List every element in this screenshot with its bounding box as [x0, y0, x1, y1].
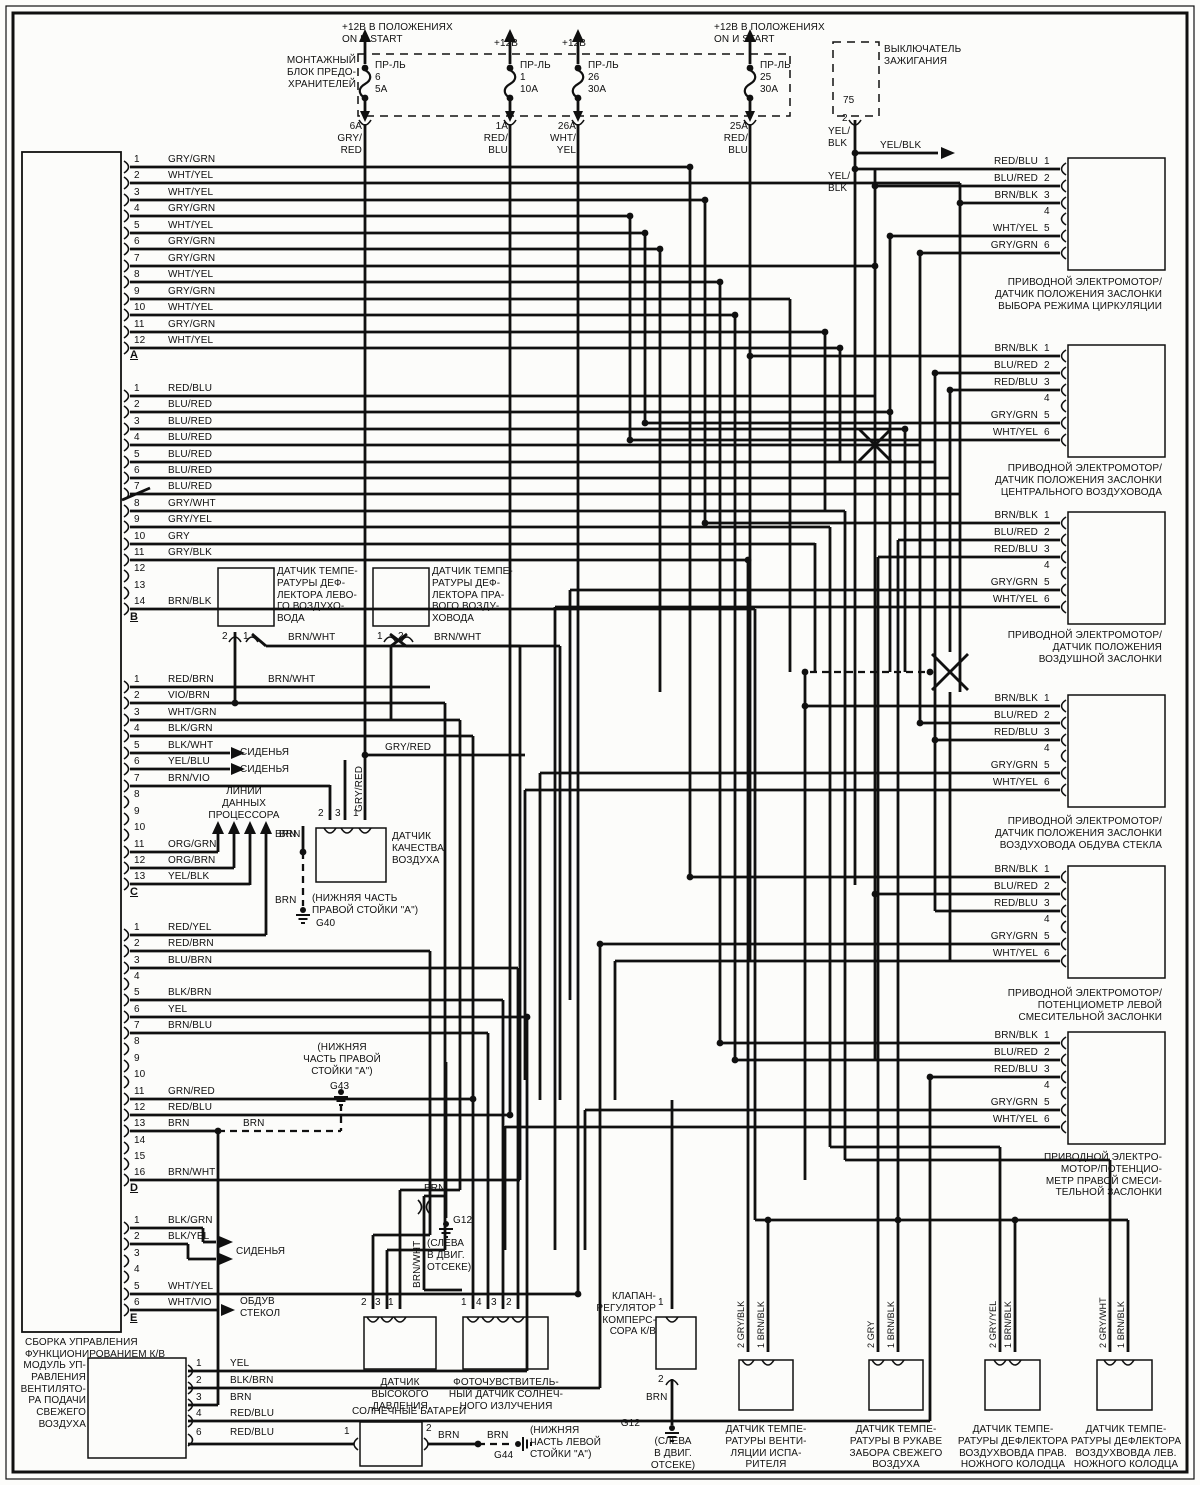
connector-label-6: ПРИВОДНОЙ ЭЛЕКТРО- МОТОР/ПОТЕНЦИО- МЕТР …	[900, 1152, 1162, 1199]
pin-number: 4	[1044, 393, 1050, 405]
pin-number: 1	[134, 674, 140, 686]
pin-number: 3	[1044, 1064, 1050, 1076]
junction-dot	[232, 700, 239, 707]
fuse-icon	[360, 70, 371, 98]
pin-number: 12	[134, 855, 145, 867]
pin-number: 1	[461, 1297, 467, 1309]
pin-wire-label: GRY/GRN	[168, 319, 215, 331]
pin-number: 5	[1044, 760, 1050, 772]
arrow-right-icon	[219, 1253, 233, 1265]
wire-label-brnwht-rot: BRN/WHT	[412, 1241, 424, 1288]
pin-wire-label: BLU/RED	[950, 173, 1038, 185]
pin-number: 1	[353, 808, 359, 820]
pin-icon	[124, 161, 129, 173]
pin-icon	[124, 1076, 129, 1088]
fuse-output-label: 25А RED/ BLU	[708, 121, 748, 156]
pin-wire-label: GRY/GRN	[950, 931, 1038, 943]
pin-number: 9	[134, 1053, 140, 1065]
ground-icon	[296, 907, 310, 923]
pin-wire-label: RED/YEL	[168, 922, 212, 934]
pin-icon	[1062, 1037, 1067, 1049]
pin-icon	[1062, 1121, 1067, 1133]
pin-wire-label: BLU/RED	[168, 481, 212, 493]
pin-number: 3	[134, 1248, 140, 1260]
pin-number: 1	[344, 1426, 350, 1438]
group-letter-b: B	[130, 611, 138, 624]
pin-number: 10	[134, 302, 145, 314]
pin-wire-label: BLK/BRN	[230, 1375, 274, 1387]
junction-dot	[627, 213, 634, 220]
left-footwell-temp-sensor-box	[1097, 1360, 1152, 1410]
junction-dot	[745, 557, 752, 564]
fuse-output-label: 6А GRY/ RED	[322, 121, 362, 156]
photo-sensor-box	[463, 1317, 548, 1369]
pin-icon	[124, 260, 129, 272]
arrow-up-icon	[228, 821, 240, 834]
pin-number: 12	[134, 335, 145, 347]
pin-icon	[124, 1271, 129, 1283]
pin-number: 2	[426, 1423, 432, 1435]
pin-wire-label: WHT/YEL	[168, 187, 213, 199]
pin-wire-label: WHT/YEL	[168, 170, 213, 182]
junction-dot	[702, 197, 709, 204]
pin-number: 13	[134, 580, 145, 592]
pin-icon	[124, 962, 129, 974]
fuse-feed-label: +12В	[494, 38, 518, 50]
pin-icon	[124, 326, 129, 338]
pin-number: 2	[1044, 360, 1050, 372]
arrow-up-icon	[212, 821, 224, 834]
left-deflector-sensor-box	[218, 568, 274, 626]
wire-label-evap-1: 1 BRN/BLK	[756, 1301, 767, 1348]
junction-dot	[902, 426, 909, 433]
pin-number: 6	[1044, 777, 1050, 789]
junction-dot	[872, 891, 879, 898]
group-letter-c: C	[130, 886, 138, 899]
pin-wire-label: WHT/GRN	[168, 707, 216, 719]
pin-wire-label: WHT/YEL	[950, 594, 1038, 606]
pin-wire-label: BLK/BRN	[168, 987, 212, 999]
right-footwell-temp-sensor-box	[985, 1360, 1040, 1410]
pin-number: 1	[388, 1297, 394, 1309]
pin-wire-label: BRN/BLK	[950, 693, 1038, 705]
pin-icon	[124, 780, 129, 792]
ignition-pin: 2	[842, 113, 848, 125]
pin-icon	[124, 1060, 129, 1072]
pin-icon	[1062, 384, 1067, 396]
pin-number: 3	[134, 955, 140, 967]
pin-number: 11	[134, 1086, 145, 1098]
pin-icon	[124, 423, 129, 435]
wire-label-fresh-1: 1 BRN/BLK	[886, 1301, 897, 1348]
pin-number: 7	[134, 773, 140, 785]
pin-icon	[124, 829, 129, 841]
ground-g43-id: G43	[330, 1081, 349, 1093]
pin-wire-label: BRN/BLK	[950, 510, 1038, 522]
pin-number: 8	[134, 789, 140, 801]
pin-number: 1	[377, 631, 383, 643]
solar-batteries-box	[360, 1422, 422, 1466]
pin-number: 3	[1044, 727, 1050, 739]
pin-icon	[124, 276, 129, 288]
ground-g44-note: (НИЖНЯЯ ЧАСТЬ ЛЕВОЙ СТОЙКИ "А")	[530, 1425, 601, 1460]
pin-icon	[1062, 197, 1067, 209]
pin-number: 3	[335, 808, 341, 820]
fuse-icon	[505, 70, 516, 98]
pin-number: 7	[134, 481, 140, 493]
connector-box	[1068, 1032, 1165, 1144]
pin-icon	[1062, 417, 1067, 429]
pin-icon	[1062, 434, 1067, 446]
connector-label-5: ПРИВОДНОЙ ЭЛЕКТРОМОТОР/ ПОТЕНЦИОМЕТР ЛЕВ…	[900, 988, 1162, 1023]
pin-wire-label: BLU/RED	[168, 449, 212, 461]
pin-number: 6	[1044, 594, 1050, 606]
defrost-label: ОБДУВ СТЕКОЛ	[240, 1296, 280, 1320]
pin-number: 2	[1044, 527, 1050, 539]
pin-icon	[1062, 213, 1067, 225]
pin-wire-label: RED/BLU	[168, 383, 212, 395]
junction-dot	[717, 1040, 724, 1047]
junction-dot	[895, 1217, 902, 1224]
junction-dot	[362, 752, 369, 759]
junction-dot	[642, 230, 649, 237]
pin-number: 1	[1044, 1030, 1050, 1042]
left-deflector-sensor-label: ДАТЧИК ТЕМПЕ- РАТУРЫ ДЕФ- ЛЕКТОРА ЛЕВО- …	[277, 566, 358, 625]
junction-dot	[887, 233, 894, 240]
pin-wire-label: WHT/VIO	[168, 1297, 211, 1309]
pin-number: 3	[134, 707, 140, 719]
pin-wire-label: BRN/BLK	[950, 190, 1038, 202]
pin-number: 1	[243, 631, 249, 643]
pin-number: 12	[134, 563, 145, 575]
ignition-switch-box	[833, 42, 879, 116]
pin-wire-label: BLU/RED	[168, 432, 212, 444]
pin-number: 5	[134, 987, 140, 999]
pin-wire-label: RED/BLU	[168, 1102, 212, 1114]
pin-number: 3	[491, 1297, 497, 1309]
fuse-box-label: МОНТАЖНЫЙ БЛОК ПРЕДО- ХРАНИТЕЛЕЙ	[274, 55, 356, 90]
pin-icon	[124, 439, 129, 451]
pin-number: 5	[1044, 223, 1050, 235]
pin-number: 1	[1044, 864, 1050, 876]
pin-number: 14	[134, 596, 145, 608]
main-module-label: СБОРКА УПРАВЛЕНИЯ ФУНКЦИОНИРОВАНИЕМ К/В	[25, 1337, 165, 1361]
pin-number: 14	[134, 1135, 145, 1147]
connector-label-3: ПРИВОДНОЙ ЭЛЕКТРОМОТОР/ ДАТЧИК ПОЛОЖЕНИЯ…	[900, 630, 1162, 665]
arrow-up-icon	[260, 821, 272, 834]
pin-number: 11	[134, 319, 145, 331]
pin-wire-label: BLU/RED	[950, 1047, 1038, 1059]
pin-icon	[124, 406, 129, 418]
junction-dot	[642, 420, 649, 427]
junction-dot	[657, 246, 664, 253]
pin-icon	[124, 1011, 129, 1023]
ground-g40-id: G40	[316, 918, 335, 930]
junction-dot	[802, 703, 809, 710]
pin-icon	[124, 878, 129, 890]
pin-wire-label: GRY/GRN	[950, 240, 1038, 252]
pin-wire-label: RED/BLU	[230, 1427, 274, 1439]
pin-number: 1	[134, 1215, 140, 1227]
pin-icon	[1062, 717, 1067, 729]
evap-temp-sensor-label: ДАТЧИК ТЕМПЕ- РАТУРЫ ВЕНТИ- ЛЯЦИИ ИСПА- …	[718, 1424, 814, 1471]
ignition-terminal: 75	[843, 95, 854, 107]
pin-icon	[1062, 784, 1067, 796]
pin-number: 2	[134, 1231, 140, 1243]
pin-icon	[124, 714, 129, 726]
wire-label-brn-air2: BRN	[275, 895, 296, 907]
pin-icon	[124, 1304, 129, 1316]
pin-wire-label: YEL/BLU	[168, 756, 210, 768]
left-footwell-temp-sensor-label: ДАТЧИК ТЕМПЕ- РАТУРЫ ДЕФЛЕКТОРА ВОЗДУХВО…	[1068, 1424, 1184, 1471]
fuse-output-label: 26А WHT/ YEL	[536, 121, 576, 156]
pin-number: 10	[134, 822, 145, 834]
pin-number: 4	[1044, 743, 1050, 755]
pin-wire-label: WHT/YEL	[950, 427, 1038, 439]
ground-icon	[515, 1437, 531, 1451]
pin-number: 1	[196, 1358, 202, 1370]
pin-icon	[1062, 567, 1067, 579]
pin-icon	[124, 681, 129, 693]
pin-icon	[124, 1109, 129, 1121]
wire-label-yelblk-2: YEL/ BLK	[828, 171, 850, 195]
main-module-box	[22, 152, 121, 1332]
pin-wire-label: BRN/BLK	[950, 1030, 1038, 1042]
pin-number: 7	[134, 253, 140, 265]
fuse-rating-label: ПР-ЛЬ 25 30А	[760, 60, 791, 95]
pin-icon	[1062, 905, 1067, 917]
pin-number: 11	[134, 547, 145, 559]
pin-icon	[124, 763, 129, 775]
pin-wire-label: GRY	[168, 531, 190, 543]
fuse-icon	[745, 70, 756, 98]
pin-wire-label: RED/BRN	[168, 674, 214, 686]
pin-icon	[1062, 601, 1067, 613]
ground-g12b-id: G12	[615, 1418, 640, 1430]
pin-icon	[1062, 767, 1067, 779]
evap-temp-sensor-box	[739, 1360, 793, 1410]
pin-icon	[124, 177, 129, 189]
pin-wire-label: GRY/GRN	[168, 236, 215, 248]
pin-wire-label: ORG/BRN	[168, 855, 215, 867]
pin-wire-label: BLU/RED	[168, 465, 212, 477]
connector-box	[1068, 345, 1165, 457]
pin-number: 1	[1044, 510, 1050, 522]
ground-g44-id: G44	[494, 1450, 513, 1462]
compressor-valve-box	[656, 1317, 696, 1369]
fuse-box	[358, 54, 790, 116]
pin-icon	[1062, 1071, 1067, 1083]
pin-number: 4	[134, 1264, 140, 1276]
pin-wire-label: GRY/GRN	[950, 1097, 1038, 1109]
pin-icon	[1062, 750, 1067, 762]
pin-wire-label: WHT/YEL	[168, 335, 213, 347]
pin-icon	[124, 1027, 129, 1039]
pin-number: 2	[196, 1375, 202, 1387]
junction-dot	[872, 183, 879, 190]
pin-icon	[124, 342, 129, 354]
junction-dot	[917, 720, 924, 727]
pin-wire-label: WHT/YEL	[168, 302, 213, 314]
pin-wire-label: WHT/YEL	[168, 220, 213, 232]
pin-wire-label: BRN	[230, 1392, 251, 1404]
pin-wire-label: WHT/YEL	[168, 269, 213, 281]
wire-label-rfoot-1: 1 BRN/BLK	[1003, 1301, 1014, 1348]
pin-number: 4	[196, 1408, 202, 1420]
connector-box	[1068, 158, 1165, 270]
pin-number: 5	[134, 1281, 140, 1293]
wire-label-rfoot-2: 2 GRY/YEL	[988, 1301, 999, 1348]
junction-dot	[932, 370, 939, 377]
pin-wire-label: RED/BLU	[950, 377, 1038, 389]
pin-icon	[124, 1238, 129, 1250]
pin-wire-label: WHT/YEL	[950, 223, 1038, 235]
connector-box	[1068, 695, 1165, 807]
pin-icon	[1062, 888, 1067, 900]
air-quality-sensor-box	[316, 828, 386, 882]
junction-dot	[732, 1057, 739, 1064]
pin-icon	[124, 1288, 129, 1300]
junction-dot	[507, 1112, 514, 1119]
pin-number: 11	[134, 839, 145, 851]
pin-icon	[124, 309, 129, 321]
pin-icon	[124, 603, 129, 615]
pin-number: 2	[134, 399, 140, 411]
pin-icon	[1062, 230, 1067, 242]
right-footwell-temp-sensor-label: ДАТЧИК ТЕМПЕ- РАТУРЫ ДЕФЛЕКТОРА ВОЗДУХВО…	[956, 1424, 1070, 1471]
wire-label-lfoot-1: 1 BRN/BLK	[1116, 1301, 1127, 1348]
pin-number: 5	[134, 740, 140, 752]
pin-wire-label: RED/BLU	[950, 1064, 1038, 1076]
pin-icon	[124, 747, 129, 759]
pin-number: 3	[134, 416, 140, 428]
pin-wire-label: BLU/RED	[168, 416, 212, 428]
pin-number: 2	[318, 808, 324, 820]
pin-icon	[1062, 700, 1067, 712]
fresh-air-temp-sensor-box	[869, 1360, 923, 1410]
pin-wire-label: BRN/WHT	[168, 1167, 215, 1179]
pin-number: 6	[1044, 240, 1050, 252]
pin-wire-label: GRY/YEL	[168, 514, 212, 526]
pin-icon	[124, 1043, 129, 1055]
pin-icon	[1062, 551, 1067, 563]
pin-number: 4	[134, 971, 140, 983]
pin-wire-label: BRN/BLK	[168, 596, 212, 608]
right-deflector-sensor-box	[373, 568, 429, 626]
pin-wire-label: BLK/YEL	[168, 1231, 209, 1243]
pin-icon	[1062, 163, 1067, 175]
pin-icon	[354, 1438, 358, 1450]
pin-icon	[1062, 1087, 1067, 1099]
pin-number: 3	[1044, 377, 1050, 389]
pin-number: 1	[1044, 343, 1050, 355]
pin-number: 3	[134, 187, 140, 199]
pin-icon	[124, 227, 129, 239]
wire	[252, 634, 266, 646]
wire-label-brnwht-c1: BRN/WHT	[268, 674, 315, 686]
wire-label-yelblk-arrow: YEL/BLK	[880, 140, 921, 152]
pin-wire-label: RED/BLU	[950, 898, 1038, 910]
wire-label-brnwht-right: BRN/WHT	[434, 632, 481, 644]
pin-wire-label: GRY/GRN	[168, 154, 215, 166]
pin-icon	[1062, 938, 1067, 950]
pin-icon	[124, 1174, 129, 1186]
pin-wire-label: WHT/YEL	[950, 948, 1038, 960]
pin-number: 5	[134, 220, 140, 232]
pin-icon	[124, 293, 129, 305]
pin-number: 1	[1044, 693, 1050, 705]
pin-number: 2	[361, 1297, 367, 1309]
pin-wire-label: VIO/BRN	[168, 690, 210, 702]
pin-icon	[124, 846, 129, 858]
pin-wire-label: GRY/GRN	[168, 286, 215, 298]
junction-dot	[717, 279, 724, 286]
junction-dot	[765, 1217, 772, 1224]
pin-wire-label: GRY/GRN	[950, 577, 1038, 589]
pin-number: 1	[134, 922, 140, 934]
arrow-right-icon	[221, 1304, 235, 1316]
wire-label-brn-solar2: BRN	[487, 1430, 508, 1442]
fuse-feed-label: +12В	[562, 38, 586, 50]
pin-number: 2	[398, 631, 404, 643]
junction-dot	[597, 941, 604, 948]
junction-dot	[927, 669, 934, 676]
wiring-diagram-page: МОНТАЖНЫЙ БЛОК ПРЕДО- ХРАНИТЕЛЕЙ ВЫКЛЮЧА…	[0, 0, 1200, 1485]
junction-dot	[747, 353, 754, 360]
pin-number: 2	[1044, 881, 1050, 893]
pin-number: 2	[506, 1297, 512, 1309]
right-deflector-sensor-label: ДАТЧИК ТЕМПЕ- РАТУРЫ ДЕФ- ЛЕКТОРА ПРА- В…	[432, 566, 513, 625]
pin-wire-label: YEL	[230, 1358, 249, 1370]
pin-icon	[1062, 517, 1067, 529]
pin-wire-label: GRY/GRN	[168, 203, 215, 215]
pin-icon	[124, 1255, 129, 1267]
pin-icon	[124, 587, 129, 599]
pin-number: 8	[134, 498, 140, 510]
ground-g12b-note: (СЛЕВА В ДВИГ. ОТСЕКЕ)	[644, 1436, 702, 1471]
pin-number: 2	[1044, 1047, 1050, 1059]
pin-wire-label: GRY/GRN	[168, 253, 215, 265]
pin-number: 9	[134, 806, 140, 818]
fuse-rating-label: ПР-ЛЬ 6 5А	[375, 60, 406, 95]
fan-module-box	[88, 1358, 186, 1458]
wire-label-brn-valve: BRN	[646, 1392, 667, 1404]
pin-icon	[124, 796, 129, 808]
pin-wire-label: GRY/BLK	[168, 547, 212, 559]
wire-label-brn-arrows: BRN	[275, 829, 296, 841]
wire-label-gryred-h: GRY/RED	[385, 742, 431, 754]
pin-wire-label: BLU/RED	[950, 360, 1038, 372]
solar-batteries-label: СОЛНЕЧНЫЕ БАТАРЕИ	[352, 1406, 466, 1418]
pin-icon	[1062, 534, 1067, 546]
pin-number: 5	[134, 449, 140, 461]
pin-icon	[124, 1158, 129, 1170]
pin-icon	[1062, 734, 1067, 746]
pin-icon	[124, 194, 129, 206]
pin-wire-label: WHT/YEL	[950, 777, 1038, 789]
pin-icon	[124, 945, 129, 957]
pin-icon	[124, 1222, 129, 1234]
wire-label-brn-d13: BRN	[243, 1118, 264, 1130]
pin-number: 6	[134, 1297, 140, 1309]
junction-dot	[470, 1096, 477, 1103]
junction-dot	[802, 669, 809, 676]
junction-dot	[475, 1441, 482, 1448]
junction-dot	[524, 1014, 531, 1021]
pin-number: 6	[1044, 1114, 1050, 1126]
pin-icon	[124, 994, 129, 1006]
junction-dot	[627, 437, 634, 444]
